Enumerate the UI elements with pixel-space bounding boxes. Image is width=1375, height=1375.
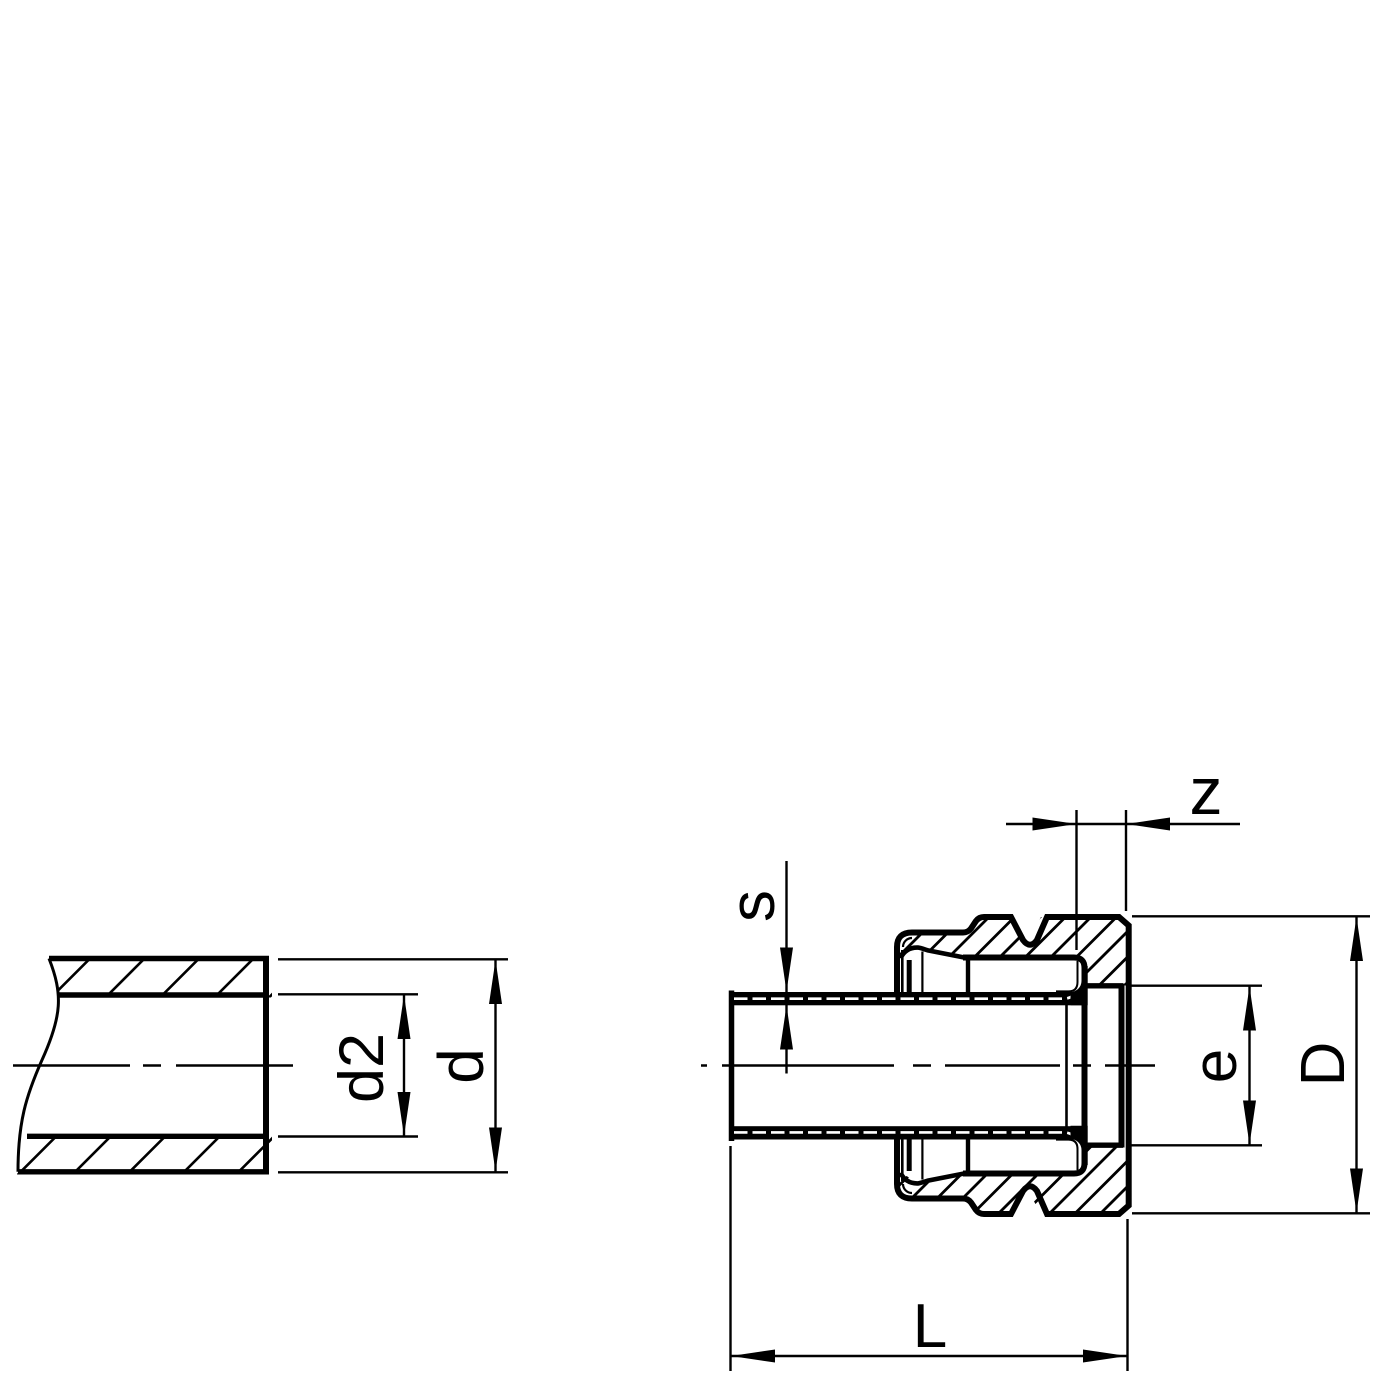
svg-text:z: z bbox=[1190, 754, 1223, 828]
svg-text:e: e bbox=[1181, 1049, 1250, 1083]
svg-text:L: L bbox=[913, 1292, 947, 1361]
svg-text:D: D bbox=[1289, 1042, 1358, 1087]
svg-text:s: s bbox=[716, 890, 788, 922]
svg-text:d2: d2 bbox=[327, 1033, 397, 1103]
svg-text:d: d bbox=[425, 1048, 497, 1084]
